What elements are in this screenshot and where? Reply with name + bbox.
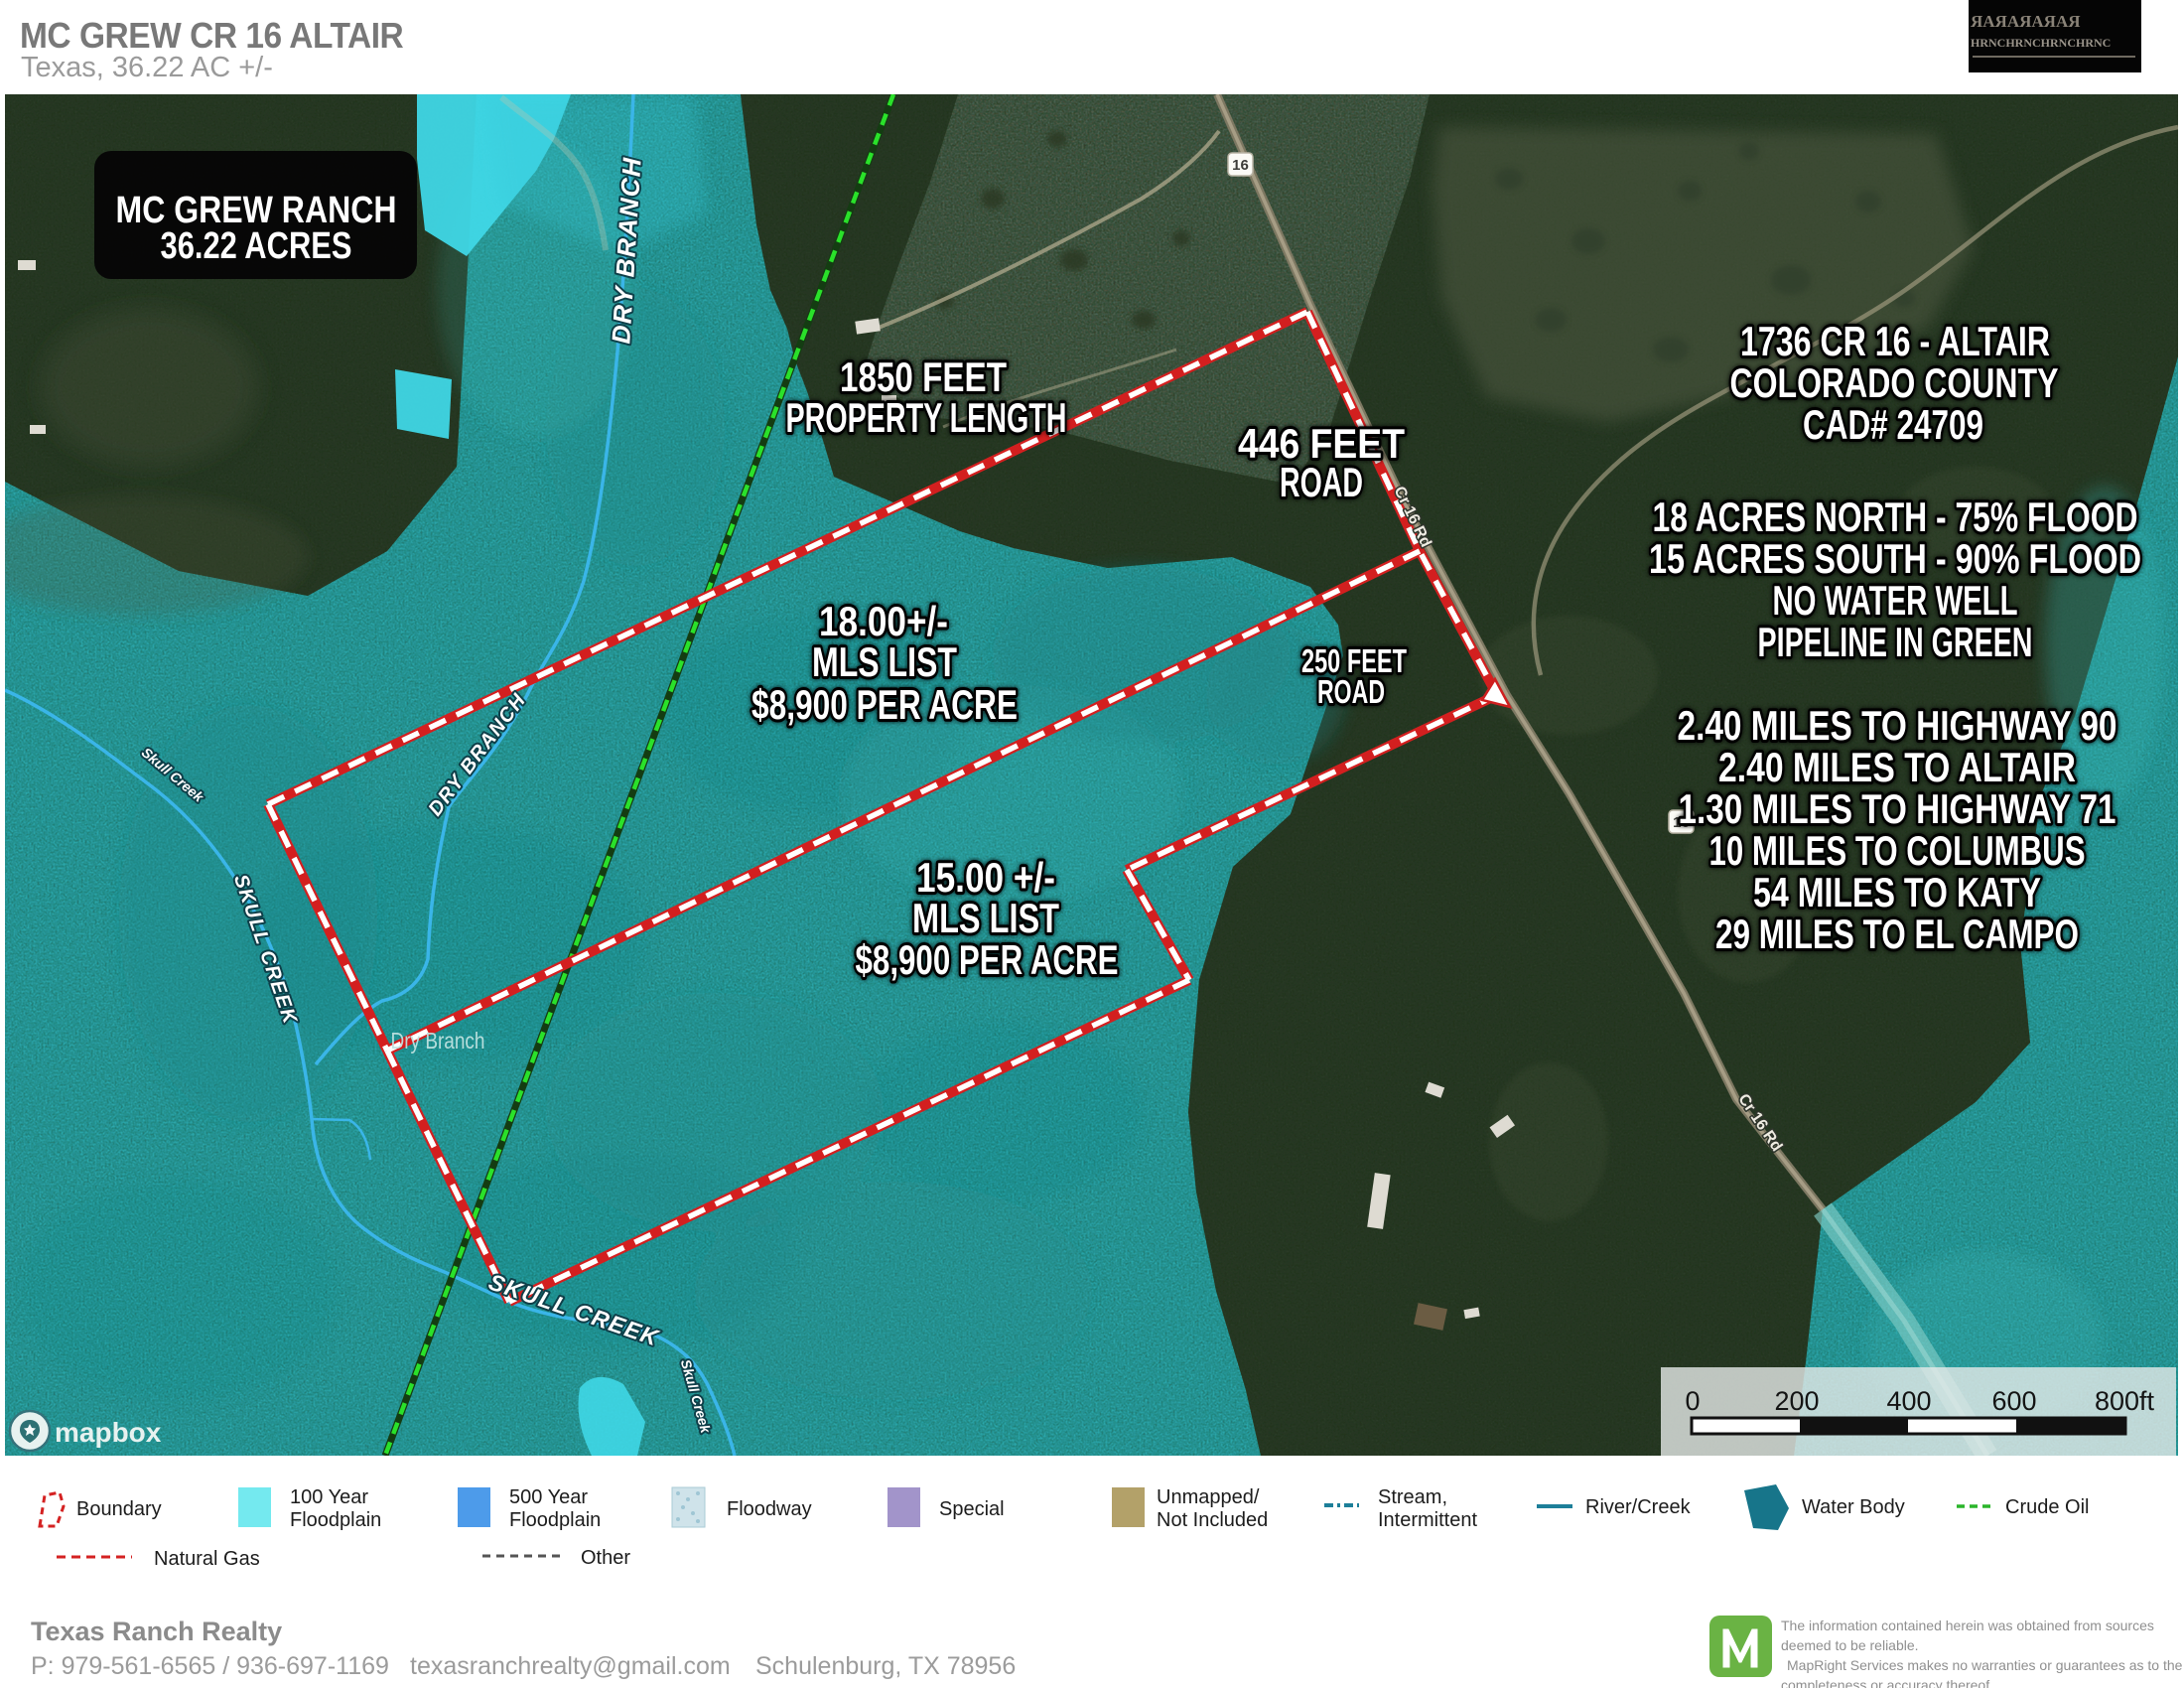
svg-text:deemed to be reliable.: deemed to be reliable.	[1781, 1637, 1919, 1653]
svg-text:Schulenburg, TX 78956: Schulenburg, TX 78956	[755, 1652, 1016, 1680]
svg-text:400: 400	[1886, 1386, 1931, 1416]
svg-text:mapbox: mapbox	[55, 1417, 162, 1448]
svg-text:ROAD: ROAD	[1317, 673, 1385, 710]
svg-text:ROAD: ROAD	[1280, 459, 1363, 505]
svg-text:$8,900 PER ACRE: $8,900 PER ACRE	[751, 681, 1018, 728]
svg-text:CAD# 24709: CAD# 24709	[1803, 401, 1983, 448]
svg-text:Crude Oil: Crude Oil	[2005, 1496, 2089, 1518]
svg-text:1850 FEET: 1850 FEET	[840, 353, 1007, 400]
svg-text:15.00 +/-: 15.00 +/-	[916, 854, 1055, 901]
svg-text:Dry Branch: Dry Branch	[391, 1028, 485, 1054]
svg-text:18 ACRES NORTH - 75% FLOOD: 18 ACRES NORTH - 75% FLOOD	[1653, 493, 2138, 540]
svg-text:texasranchrealty@gmail.com: texasranchrealty@gmail.com	[410, 1652, 731, 1680]
svg-text:2.40 MILES TO HIGHWAY 90: 2.40 MILES TO HIGHWAY 90	[1678, 702, 2117, 749]
svg-text:Floodplain: Floodplain	[290, 1509, 381, 1531]
svg-text:Special: Special	[939, 1498, 1005, 1520]
svg-text:Texas Ranch Realty: Texas Ranch Realty	[31, 1617, 282, 1646]
svg-text:COLORADO COUNTY: COLORADO COUNTY	[1730, 359, 2059, 406]
svg-text:PIPELINE IN GREEN: PIPELINE IN GREEN	[1758, 619, 2033, 665]
svg-text:Not Included: Not Included	[1157, 1509, 1268, 1531]
svg-text:Water Body: Water Body	[1802, 1496, 1905, 1518]
svg-text:Floodplain: Floodplain	[509, 1509, 601, 1531]
svg-text:PROPERTY LENGTH: PROPERTY LENGTH	[786, 394, 1067, 441]
svg-text:P: 979-561-6565 / 936-697-11: P: 979-561-6565 / 936-697-1169	[31, 1652, 389, 1680]
svg-text:Boundary: Boundary	[76, 1498, 162, 1520]
svg-text:River/Creek: River/Creek	[1585, 1496, 1692, 1518]
svg-text:MLS LIST: MLS LIST	[812, 638, 957, 685]
svg-text:MapRight Services makes no war: MapRight Services makes no warranties or…	[1787, 1657, 2183, 1673]
svg-text:$8,900 PER ACRE: $8,900 PER ACRE	[856, 936, 1119, 983]
svg-text:Intermittent: Intermittent	[1378, 1509, 1477, 1531]
svg-text:completeness or accuracy there: completeness or accuracy thereof.	[1781, 1677, 1993, 1688]
svg-text:16: 16	[1232, 157, 1249, 174]
svg-text:Natural Gas: Natural Gas	[154, 1548, 260, 1570]
svg-text:Floodway: Floodway	[727, 1498, 812, 1520]
svg-text:10 MILES TO COLUMBUS: 10 MILES TO COLUMBUS	[1709, 827, 2086, 874]
svg-text:Unmapped/: Unmapped/	[1157, 1486, 1260, 1508]
svg-text:2.40 MILES TO ALTAIR: 2.40 MILES TO ALTAIR	[1718, 744, 2076, 790]
svg-text:NO WATER WELL: NO WATER WELL	[1773, 577, 2018, 624]
svg-text:15 ACRES SOUTH - 90% FLOOD: 15 ACRES SOUTH - 90% FLOOD	[1649, 535, 2141, 582]
svg-text:Stream,: Stream,	[1378, 1486, 1447, 1508]
svg-text:600: 600	[1991, 1386, 2036, 1416]
svg-text:36.22 ACRES: 36.22 ACRES	[161, 225, 352, 267]
svg-text:200: 200	[1774, 1386, 1819, 1416]
svg-text:29 MILES TO EL CAMPO: 29 MILES TO EL CAMPO	[1715, 911, 2079, 957]
svg-text:0: 0	[1685, 1386, 1700, 1416]
svg-text:MLS LIST: MLS LIST	[912, 895, 1059, 941]
svg-text:18.00+/-: 18.00+/-	[819, 598, 948, 644]
svg-text:Other: Other	[581, 1547, 630, 1569]
svg-text:100 Year: 100 Year	[290, 1486, 368, 1508]
svg-text:800ft: 800ft	[2095, 1386, 2155, 1416]
svg-text:500 Year: 500 Year	[509, 1486, 588, 1508]
svg-text:The information contained here: The information contained herein was obt…	[1781, 1618, 2154, 1633]
svg-text:1.30 MILES TO HIGHWAY 71: 1.30 MILES TO HIGHWAY 71	[1679, 785, 2116, 832]
svg-text:54 MILES TO KATY: 54 MILES TO KATY	[1753, 869, 2041, 915]
svg-text:1736 CR 16 - ALTAIR: 1736 CR 16 - ALTAIR	[1740, 318, 2050, 364]
